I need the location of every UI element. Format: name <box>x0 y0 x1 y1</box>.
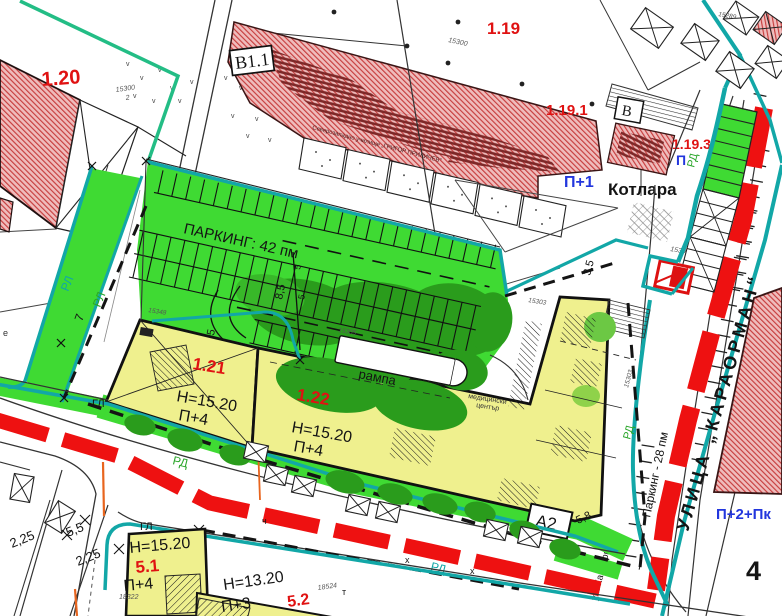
svg-text:v: v <box>224 75 228 82</box>
svg-text:е: е <box>3 328 8 338</box>
svg-text:v: v <box>268 137 272 144</box>
svg-text:1.20: 1.20 <box>41 66 81 91</box>
svg-text:v: v <box>133 93 137 100</box>
svg-text:v: v <box>152 98 156 105</box>
svg-text:х: х <box>405 555 410 565</box>
svg-text:Котлара: Котлара <box>608 180 677 199</box>
svg-text:v: v <box>255 116 259 123</box>
svg-text:х: х <box>470 566 475 576</box>
svg-text:ГЛ: ГЛ <box>140 521 153 533</box>
svg-text:П+1: П+1 <box>564 174 594 191</box>
svg-text:ГЛ: ГЛ <box>92 398 105 410</box>
svg-text:v: v <box>140 75 144 82</box>
svg-text:v: v <box>246 133 250 140</box>
svg-text:В1.1: В1.1 <box>234 49 271 73</box>
svg-text:18322: 18322 <box>119 594 139 601</box>
svg-text:4: 4 <box>746 556 761 586</box>
svg-text:v: v <box>178 98 182 105</box>
svg-text:v: v <box>126 61 130 68</box>
svg-text:v: v <box>231 113 235 120</box>
svg-text:П+4: П+4 <box>123 575 154 595</box>
svg-text:5.2: 5.2 <box>286 591 310 611</box>
svg-text:v: v <box>190 79 194 86</box>
svg-text:т: т <box>342 587 346 597</box>
svg-text:1.19.1: 1.19.1 <box>546 102 588 119</box>
svg-text:ч: ч <box>262 516 267 526</box>
svg-text:П+2+Пк: П+2+Пк <box>716 506 771 523</box>
svg-text:1.19: 1.19 <box>487 19 520 38</box>
svg-text:5.1: 5.1 <box>135 556 160 577</box>
